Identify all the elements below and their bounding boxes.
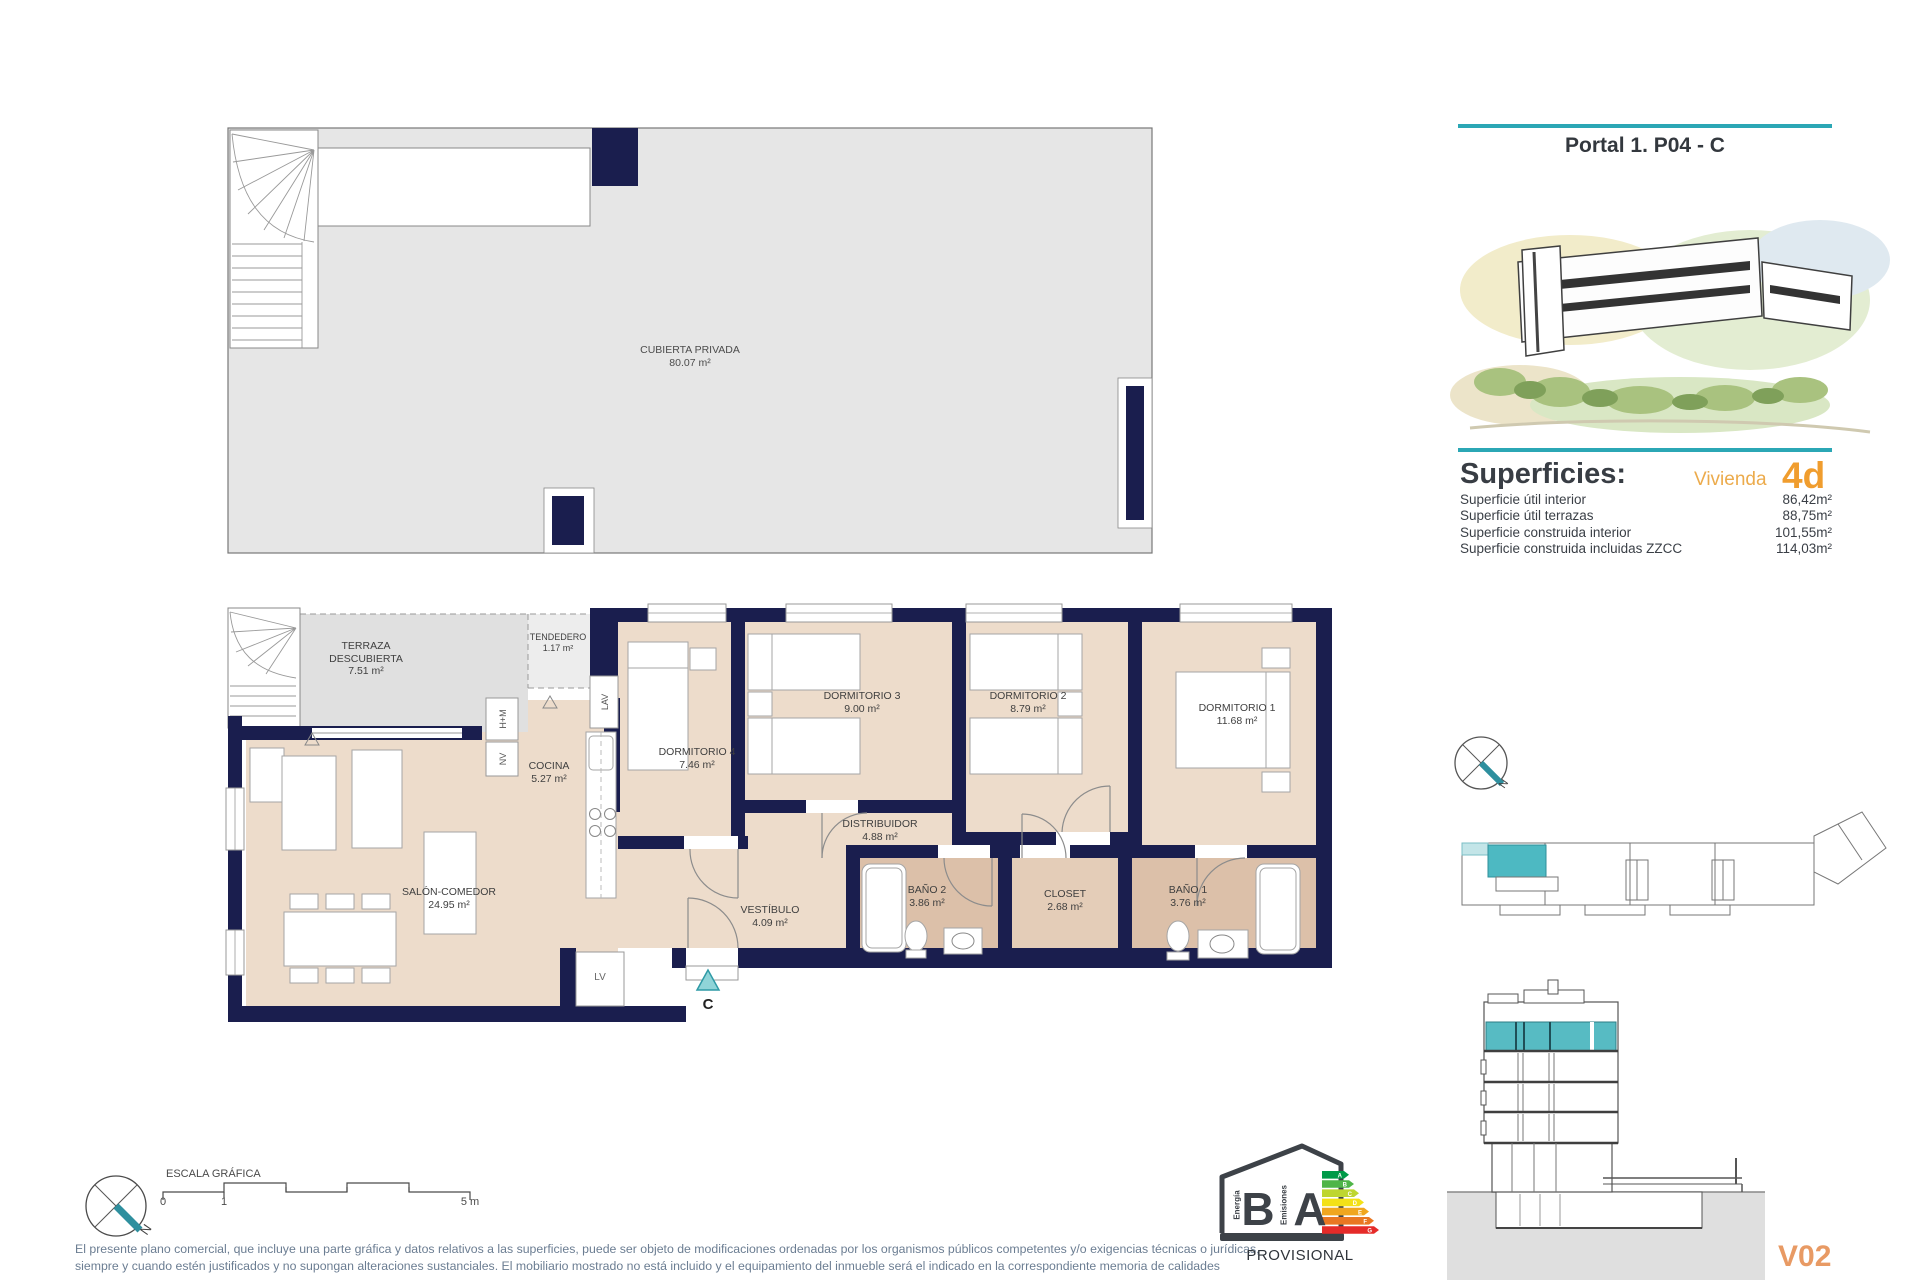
energy-emisiones-label: Emisiones	[1280, 1185, 1289, 1225]
room-area: 7.46 m²	[659, 759, 736, 772]
room-area: 7.51 m²	[329, 665, 403, 678]
vivienda-code: 4d	[1782, 455, 1825, 497]
room-name: DORMITORIO 4	[659, 746, 736, 759]
version-label: V02	[1778, 1240, 1831, 1274]
room-area: 24.95 m²	[402, 899, 496, 912]
room-label-terraza: TERRAZA DESCUBIERTA7.51 m²	[329, 640, 403, 678]
entrance-marker-label: C	[703, 996, 714, 1013]
room-area: 3.86 m²	[908, 897, 947, 910]
superficies-row-value: 86,42m²	[1782, 492, 1832, 508]
energy-letter-b: B	[1241, 1182, 1274, 1236]
page-title: Portal 1. P04 - C	[1565, 134, 1725, 158]
energy-arrow-letter: F	[1363, 1220, 1367, 1226]
sheet-drawing: A B C D E F G	[0, 0, 1920, 1280]
section-diagram	[1447, 980, 1765, 1280]
energy-arrow-letter: C	[1348, 1192, 1353, 1198]
room-name: DORMITORIO 2	[990, 690, 1067, 703]
room-label-bano1: BAÑO 13.76 m²	[1169, 884, 1208, 909]
superficies-row-value: 114,03m²	[1776, 541, 1832, 557]
room-name: SALÓN-COMEDOR	[402, 886, 496, 899]
energy-arrow-letter: D	[1353, 1201, 1358, 1207]
building-sketch	[1450, 220, 1890, 433]
superficies-row: Superficie construida interior101,55m²	[1460, 525, 1832, 541]
room-area: 11.68 m²	[1199, 715, 1276, 728]
scale-bar-title: ESCALA GRÁFICA	[166, 1168, 261, 1180]
room-label-dormitorio4: DORMITORIO 47.46 m²	[659, 746, 736, 771]
room-name: DORMITORIO 3	[824, 690, 901, 703]
superficies-row: Superficie útil interior86,42m²	[1460, 492, 1832, 508]
room-label-dormitorio1: DORMITORIO 111.68 m²	[1199, 702, 1276, 727]
room-name: COCINA	[529, 760, 570, 773]
superficies-row-value: 88,75m²	[1782, 508, 1832, 524]
room-label-cubierta: CUBIERTA PRIVADA 80.07 m²	[640, 344, 740, 369]
room-name: BAÑO 1	[1169, 884, 1208, 897]
vivienda-label: Vivienda	[1694, 469, 1767, 491]
room-name: TENDEDERO	[530, 632, 587, 643]
room-label-cocina: COCINA5.27 m²	[529, 760, 570, 785]
energy-energia-label: Energía	[1233, 1190, 1242, 1219]
superficies-table: Superficie útil interior86,42m² Superfic…	[1460, 492, 1832, 558]
superficies-row-value: 101,55m²	[1775, 525, 1832, 541]
room-label-dormitorio2: DORMITORIO 28.79 m²	[990, 690, 1067, 715]
superficies-row-label: Superficie construida interior	[1460, 525, 1631, 541]
room-label-tendedero: TENDEDERO1.17 m²	[530, 632, 587, 654]
scale-tick-0: 0	[160, 1196, 166, 1208]
superficies-row-label: Superficie útil interior	[1460, 492, 1586, 508]
room-area: 80.07 m²	[640, 357, 740, 370]
superficies-row: Superficie construida incluidas ZZCC114,…	[1460, 541, 1832, 557]
room-name: BAÑO 2	[908, 884, 947, 897]
room-area: 2.68 m²	[1044, 901, 1086, 914]
superficies-row-label: Superficie útil terrazas	[1460, 508, 1594, 524]
room-area: 9.00 m²	[824, 703, 901, 716]
energy-arrow-letter: G	[1367, 1229, 1372, 1235]
energy-arrow-letter: B	[1343, 1183, 1348, 1189]
closet-label-hm: H+M	[498, 709, 508, 728]
room-name: CUBIERTA PRIVADA	[640, 344, 740, 357]
room-name: CLOSET	[1044, 888, 1086, 901]
superficies-heading: Superficies:	[1460, 458, 1626, 491]
room-name: TERRAZA DESCUBIERTA	[329, 640, 403, 665]
closet-label-lv: LV	[594, 972, 606, 983]
roof-plan-drawing	[228, 128, 1152, 553]
energy-arrow-letter: E	[1358, 1210, 1362, 1216]
room-area: 3.76 m²	[1169, 897, 1208, 910]
room-area: 4.88 m²	[842, 831, 917, 844]
room-area: 5.27 m²	[529, 773, 570, 786]
room-label-distribuidor: DISTRIBUIDOR4.88 m²	[842, 818, 917, 843]
room-area: 8.79 m²	[990, 703, 1067, 716]
room-area: 1.17 m²	[530, 643, 587, 654]
room-label-vestibulo: VESTÍBULO4.09 m²	[741, 904, 800, 929]
room-name: DISTRIBUIDOR	[842, 818, 917, 831]
title-rule	[1458, 124, 1832, 128]
scale-bar	[163, 1183, 470, 1200]
room-label-salon: SALÓN-COMEDOR24.95 m²	[402, 886, 496, 911]
closet-label-lav: LAV	[600, 694, 610, 710]
scale-tick-5m: 5 m	[461, 1196, 479, 1208]
energy-letter-a: A	[1293, 1182, 1326, 1236]
superficies-row-label: Superficie construida incluidas ZZCC	[1460, 541, 1682, 557]
room-label-closet: CLOSET2.68 m²	[1044, 888, 1086, 913]
room-name: VESTÍBULO	[741, 904, 800, 917]
superficies-row: Superficie útil terrazas88,75m²	[1460, 508, 1832, 524]
site-plan-diagram	[1462, 812, 1886, 915]
energy-provisional-label: PROVISIONAL	[1246, 1247, 1353, 1264]
superficies-rule	[1458, 448, 1832, 452]
room-name: DORMITORIO 1	[1199, 702, 1276, 715]
energy-arrow-letter: A	[1338, 1174, 1343, 1180]
plan-sheet: A B C D E F G Portal 1. P04 - C Superfic…	[0, 0, 1920, 1280]
room-label-dormitorio3: DORMITORIO 39.00 m²	[824, 690, 901, 715]
scale-tick-1: 1	[221, 1196, 227, 1208]
room-label-bano2: BAÑO 23.86 m²	[908, 884, 947, 909]
disclaimer-line-2: siempre y cuando estén justificados y no…	[75, 1259, 1220, 1273]
disclaimer-line-1: El presente plano comercial, que incluye…	[75, 1242, 1260, 1256]
closet-label-nv: NV	[498, 753, 508, 766]
room-area: 4.09 m²	[741, 917, 800, 930]
